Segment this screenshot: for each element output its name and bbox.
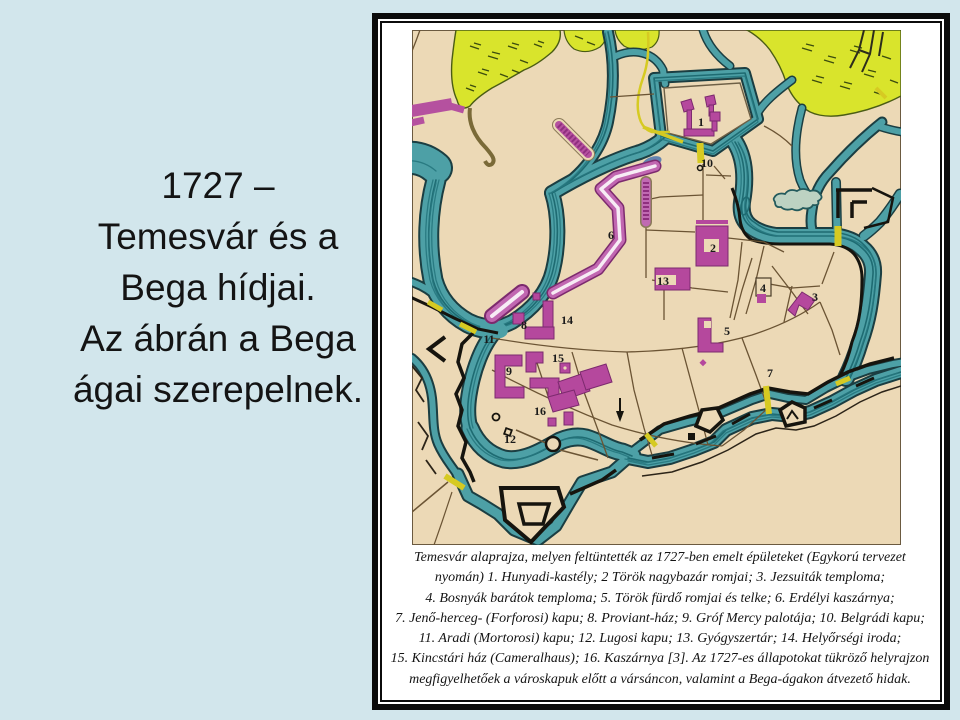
svg-text:13: 13 xyxy=(657,274,669,288)
svg-text:4: 4 xyxy=(760,281,766,295)
svg-text:14: 14 xyxy=(561,313,573,327)
svg-text:1: 1 xyxy=(698,115,704,129)
svg-text:9: 9 xyxy=(506,364,512,378)
svg-text:6: 6 xyxy=(608,228,614,242)
svg-text:12: 12 xyxy=(504,432,516,446)
svg-text:15: 15 xyxy=(552,351,564,365)
svg-text:5: 5 xyxy=(724,324,730,338)
svg-text:16: 16 xyxy=(534,404,546,418)
svg-text:2: 2 xyxy=(710,241,716,255)
svg-text:7: 7 xyxy=(767,366,773,380)
svg-text:11: 11 xyxy=(483,332,494,346)
svg-text:8: 8 xyxy=(521,318,527,332)
svg-text:10: 10 xyxy=(701,156,713,170)
svg-text:3: 3 xyxy=(812,290,818,304)
